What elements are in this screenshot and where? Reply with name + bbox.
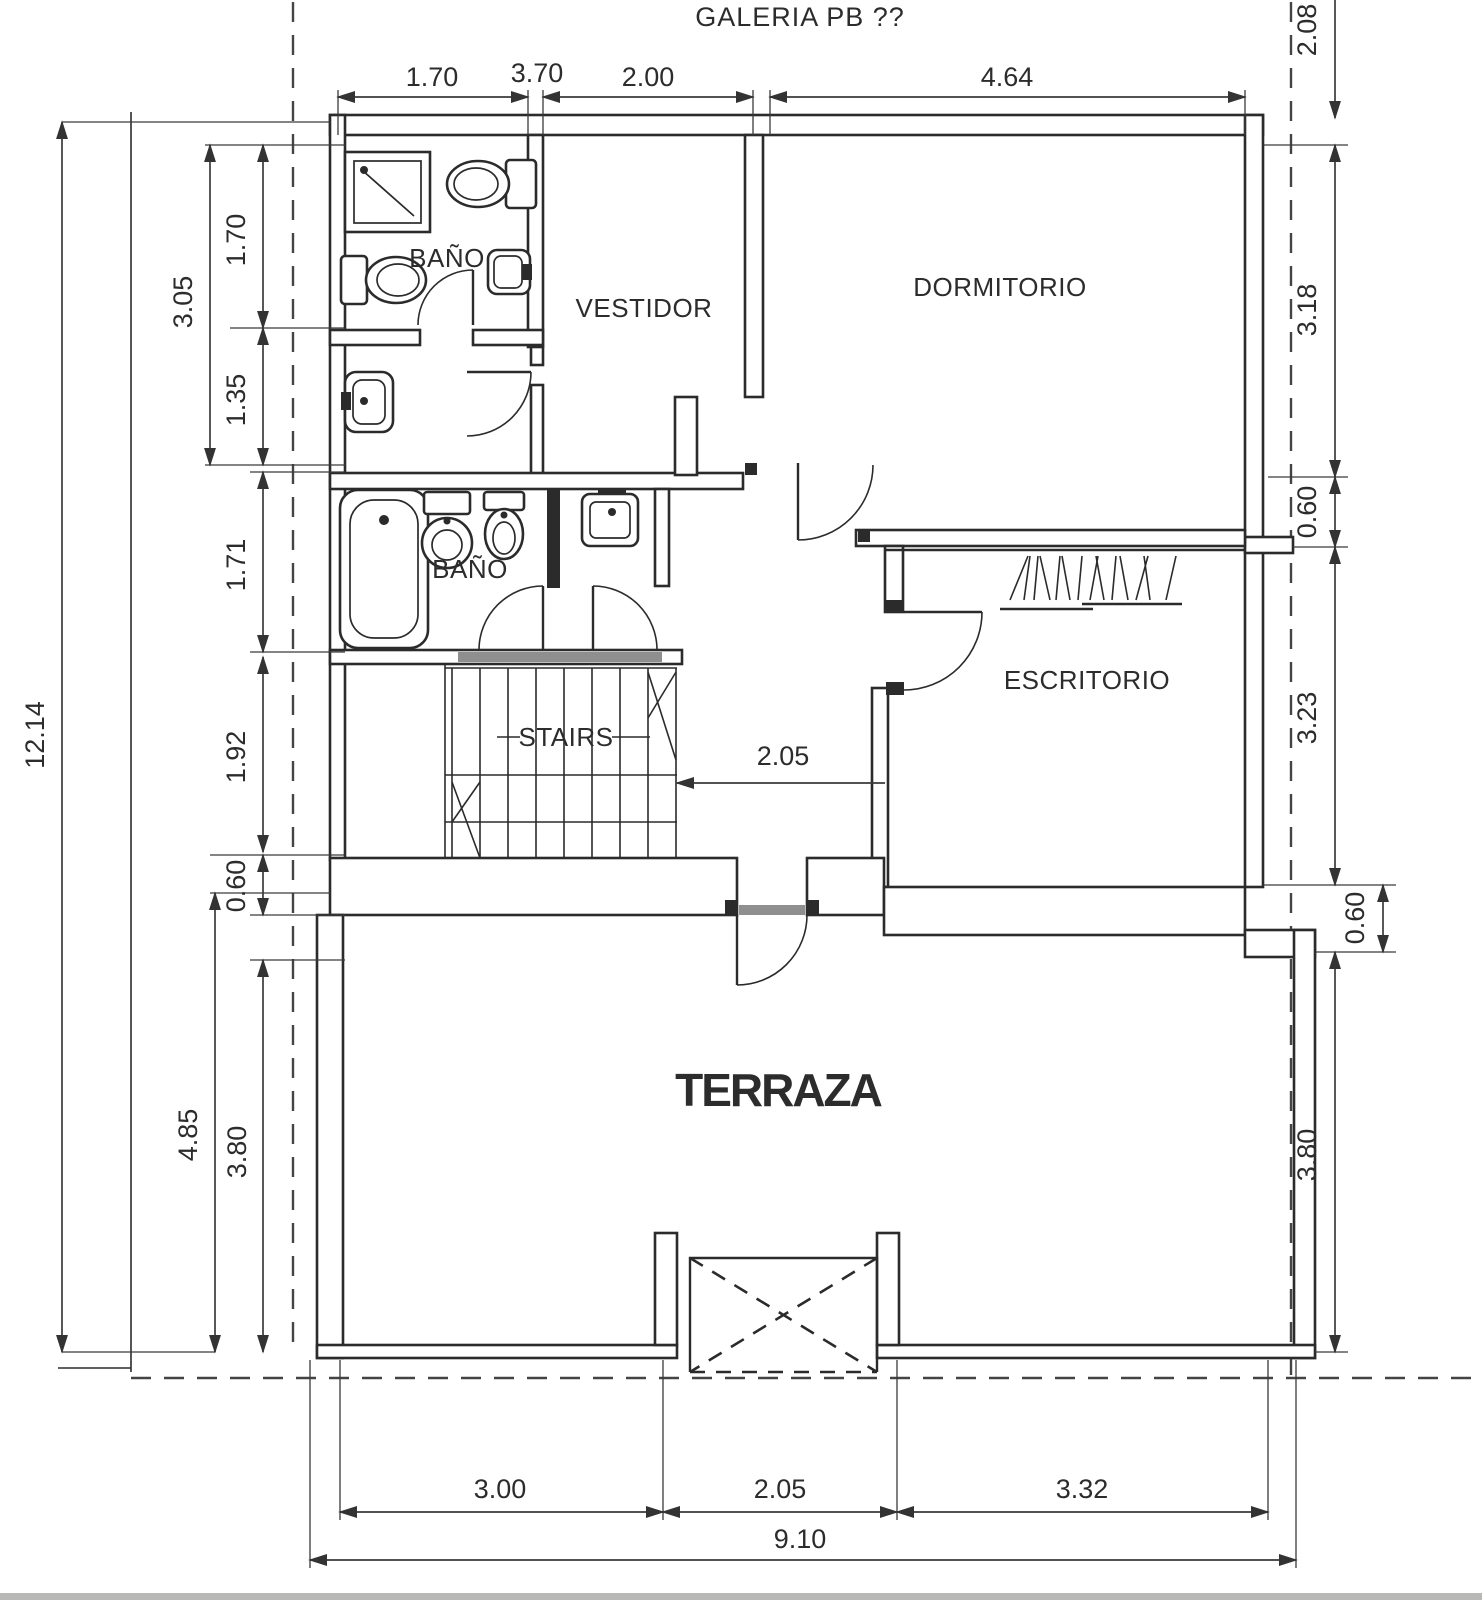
dim-middle-205: 2.05 — [757, 741, 810, 771]
label-vestidor: VESTIDOR — [576, 293, 713, 323]
dim-left-extensions — [62, 122, 345, 1352]
bidet — [484, 492, 524, 559]
wall-skylight-stub-left — [655, 1233, 677, 1345]
dim-top-370: 3.70 — [511, 58, 564, 88]
door-sinkroom — [467, 372, 531, 436]
toilet-bano-top-right — [447, 160, 536, 208]
dim-right-318: 3.18 — [1292, 284, 1322, 337]
stairs — [445, 664, 677, 858]
wall-bano-sinkroom-left — [330, 330, 420, 345]
dim-right-060b: 0.60 — [1340, 892, 1370, 945]
label-bano-top: BAÑO — [409, 243, 485, 273]
label-terraza: TERRAZA — [675, 1064, 882, 1116]
wall-bano-sinkroom-right — [473, 330, 543, 345]
shower — [345, 152, 430, 232]
closet-hanger-hatch — [1010, 556, 1176, 600]
label-bano-main: BAÑO — [432, 554, 508, 584]
wall-dormitorio-bottom — [856, 530, 1245, 546]
dimensions-right: 3.18 0.60 3.23 0.60 3.80 — [1263, 145, 1396, 1352]
dim-left-305: 3.05 — [168, 276, 198, 329]
property-boundary-lines — [58, 2, 1480, 1378]
dim-left-380: 3.80 — [222, 1126, 252, 1179]
door-dormitorio — [745, 463, 873, 542]
dimensions-bottom: 3.00 2.05 3.32 9.10 — [310, 1360, 1296, 1568]
dim-top-170: 1.70 — [406, 62, 459, 92]
wall-vestidor-stub — [675, 397, 697, 475]
door-sinkroom2 — [593, 586, 657, 650]
dim-left-135: 1.35 — [221, 374, 251, 427]
walls — [317, 115, 1315, 1358]
skylight-void — [690, 1258, 877, 1372]
wall-terraza-bottom-right — [877, 1345, 1315, 1358]
wall-top — [330, 115, 1263, 135]
dim-left-170: 1.70 — [221, 214, 251, 267]
wall-right-upper — [1245, 115, 1263, 887]
wall-vestidor-dormitorio — [745, 135, 763, 397]
sink-room2 — [582, 489, 638, 546]
wall-sinkroom-right — [531, 385, 543, 475]
closet — [885, 550, 1245, 609]
dim-right-323: 3.23 — [1292, 692, 1322, 745]
dim-bottom-300: 3.00 — [474, 1474, 527, 1504]
dim-left-171: 1.71 — [221, 539, 251, 592]
scan-edge — [0, 1593, 1482, 1600]
wall-terraza-band-left — [330, 858, 737, 915]
dim-left-1214: 12.14 — [20, 701, 50, 769]
sink-room-135 — [341, 372, 393, 432]
door-bano-main — [479, 586, 543, 650]
dim-bottom-332: 3.32 — [1056, 1474, 1109, 1504]
bathtub — [340, 490, 428, 648]
wall-bano2-divider — [547, 488, 560, 588]
wall-sinkroom-stub — [531, 347, 543, 365]
stairs-treads — [452, 668, 676, 858]
dimension-top-right: 2.08 — [1292, 0, 1335, 118]
dim-right-060a: 0.60 — [1292, 486, 1322, 539]
floor-plan-sheet: BAÑO VESTIDOR DORMITORIO BAÑO STAIRS ESC… — [0, 0, 1482, 1600]
wall-stairs-top-grey — [458, 652, 662, 662]
label-stairs: STAIRS — [519, 722, 614, 752]
dim-top-200: 2.00 — [622, 62, 675, 92]
dim-bottom-910: 9.10 — [774, 1524, 827, 1554]
dim-right-extensions — [1263, 145, 1396, 1352]
dimension-middle: 2.05 — [677, 741, 885, 783]
dim-left-060: 0.60 — [221, 860, 251, 913]
dim-left-192: 1.92 — [221, 731, 251, 784]
label-galeria-title: GALERIA PB ?? — [695, 2, 905, 32]
label-dormitorio: DORMITORIO — [913, 272, 1087, 302]
dim-right-208: 2.08 — [1292, 4, 1322, 57]
dim-bottom-205: 2.05 — [754, 1474, 807, 1504]
door-terraza — [725, 900, 819, 985]
dimensions-left: 12.14 3.05 1.70 1.35 1.71 1.92 0.60 4.85… — [20, 122, 345, 1352]
wall-terraza-bottom-left — [317, 1345, 677, 1358]
wall-right-step — [1245, 537, 1293, 553]
wall-escritorio-bottom — [884, 887, 1245, 935]
door-escritorio — [886, 600, 982, 695]
dim-right-380: 3.80 — [1292, 1129, 1322, 1182]
wall-skylight-stub-right — [877, 1233, 899, 1345]
wall-terraza-left — [317, 915, 343, 1358]
dim-top-464: 4.64 — [981, 62, 1034, 92]
sink-bano-top — [488, 250, 532, 294]
dim-left-485: 4.85 — [173, 1109, 203, 1162]
label-escritorio: ESCRITORIO — [1004, 665, 1170, 695]
floor-plan-drawing: BAÑO VESTIDOR DORMITORIO BAÑO STAIRS ESC… — [0, 0, 1482, 1600]
wall-sinkroom2-right — [655, 489, 669, 586]
